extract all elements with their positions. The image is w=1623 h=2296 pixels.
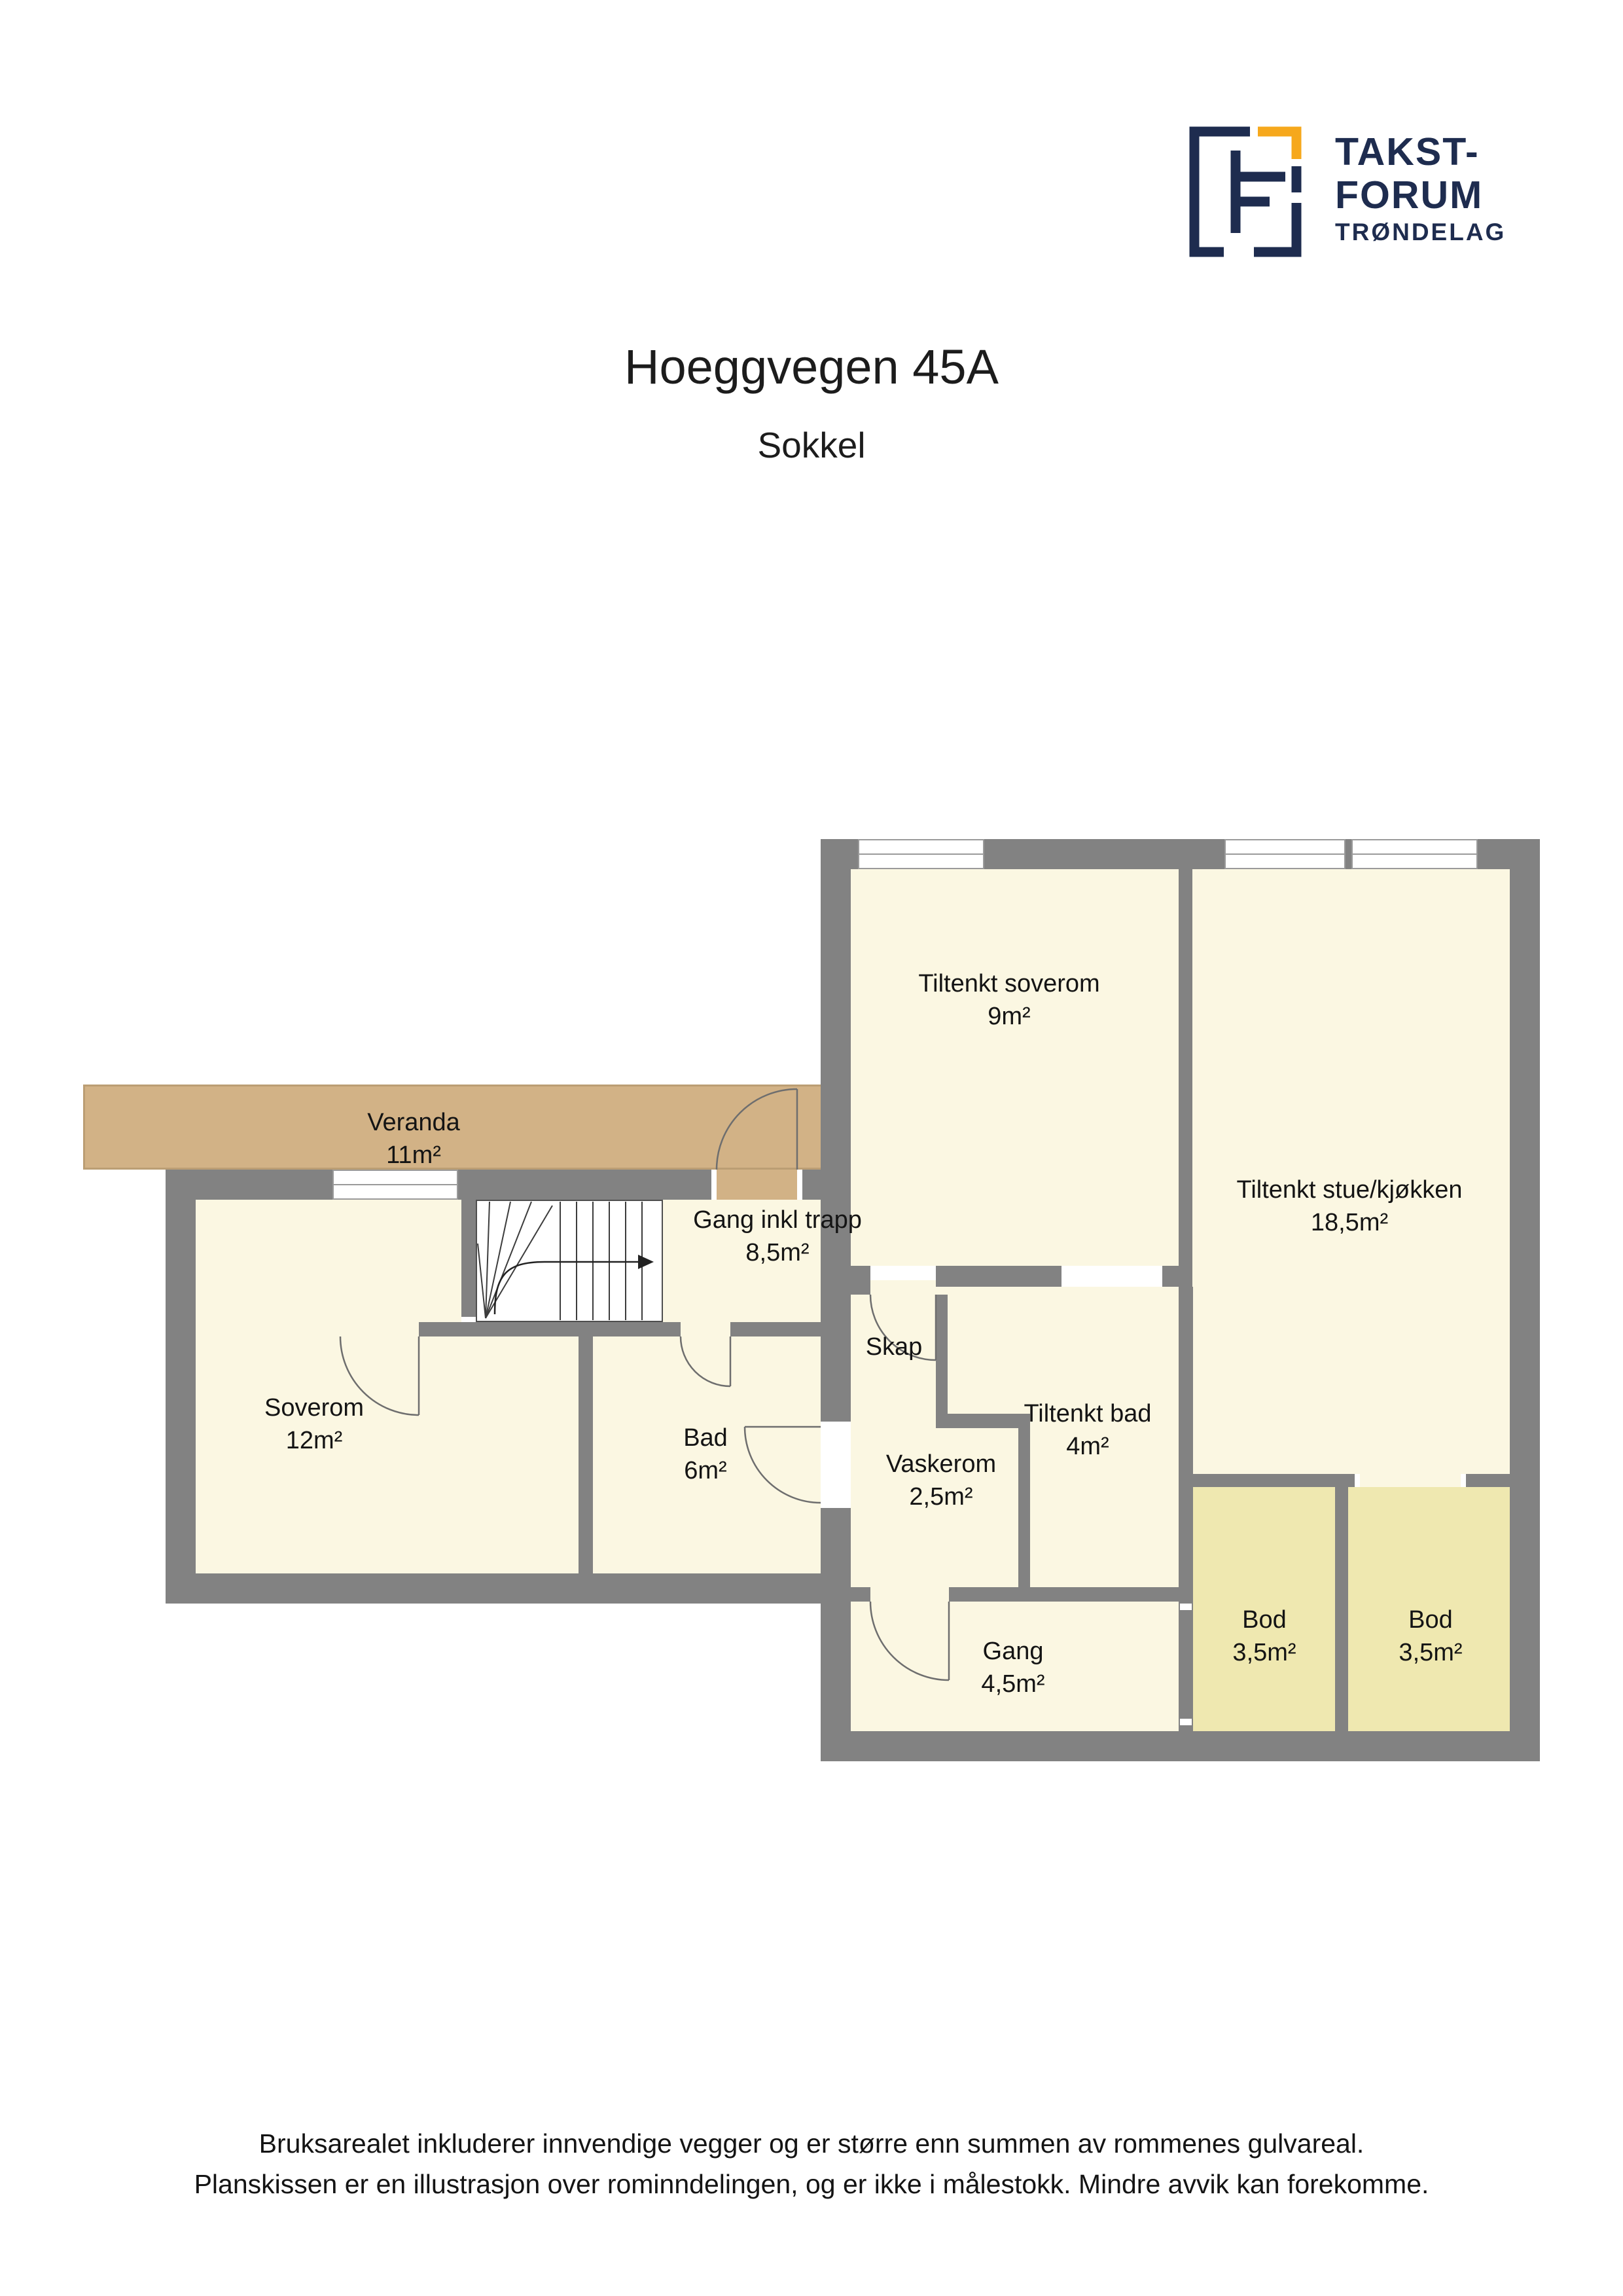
floor-plan-page: TAKST- FORUM TRØNDELAG Hoeggvegen 45A So… — [0, 0, 1623, 2296]
label-bod2: Bod3,5m² — [1399, 1604, 1462, 1669]
label-gang: Gang4,5m² — [981, 1635, 1044, 1700]
label-gang-trapp: Gang inkl trapp8,5m² — [693, 1204, 862, 1269]
label-vaskerom: Vaskerom2,5m² — [886, 1448, 996, 1513]
label-soverom: Soverom12m² — [264, 1391, 364, 1457]
door-arc-veranda — [717, 1089, 797, 1170]
footer-disclaimer-line1: Bruksarealet inkluderer innvendige vegge… — [0, 2128, 1623, 2159]
label-stue-kjokken: Tiltenkt stue/kjøkken18,5m² — [1237, 1174, 1463, 1239]
plan-linework — [0, 0, 1623, 2296]
label-tiltenkt-bad: Tiltenkt bad4m² — [1024, 1397, 1151, 1463]
stair-winder — [486, 1202, 531, 1318]
label-veranda: Veranda11m² — [367, 1106, 460, 1172]
label-tiltenkt-soverom: Tiltenkt soverom9m² — [918, 967, 1099, 1033]
footer-disclaimer-line2: Planskissen er en illustrasjon over romi… — [0, 2169, 1623, 2200]
label-skap: Skap — [866, 1331, 923, 1363]
label-bad: Bad6m² — [683, 1422, 728, 1487]
label-bod1: Bod3,5m² — [1232, 1604, 1296, 1669]
stair-walkline — [495, 1262, 638, 1314]
stair-walkline-arrow — [638, 1255, 654, 1269]
door-arc-gang — [870, 1602, 949, 1680]
stair-winder — [478, 1244, 486, 1318]
door-arc-bad — [681, 1336, 730, 1386]
door-arc-bad-vaskerom — [745, 1427, 821, 1503]
